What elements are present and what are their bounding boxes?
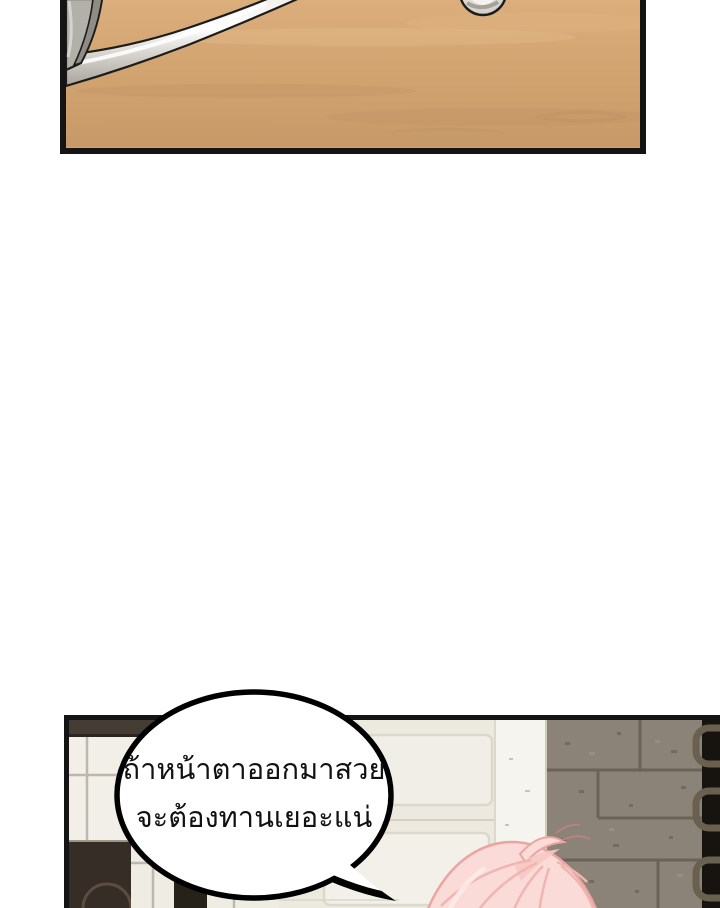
panel-top-wooden-table xyxy=(60,0,646,154)
wood-surface xyxy=(66,0,640,147)
wooden-table-scene xyxy=(66,0,640,147)
bubble-text-line1: ถ้าหน้าตาออกมาสวย xyxy=(104,746,404,794)
speech-bubble: ถ้าหน้าตาออกมาสวย จะต้องทานเยอะแน่ xyxy=(112,689,412,908)
bubble-text-line2: จะต้องทานเยอะแน่ xyxy=(104,794,404,842)
bubble-text: ถ้าหน้าตาออกมาสวย จะต้องทานเยอะแน่ xyxy=(104,746,404,842)
comic-page: ถ้าหน้าตาออกมาสวย จะต้องทานเยอะแน่ xyxy=(0,0,720,908)
